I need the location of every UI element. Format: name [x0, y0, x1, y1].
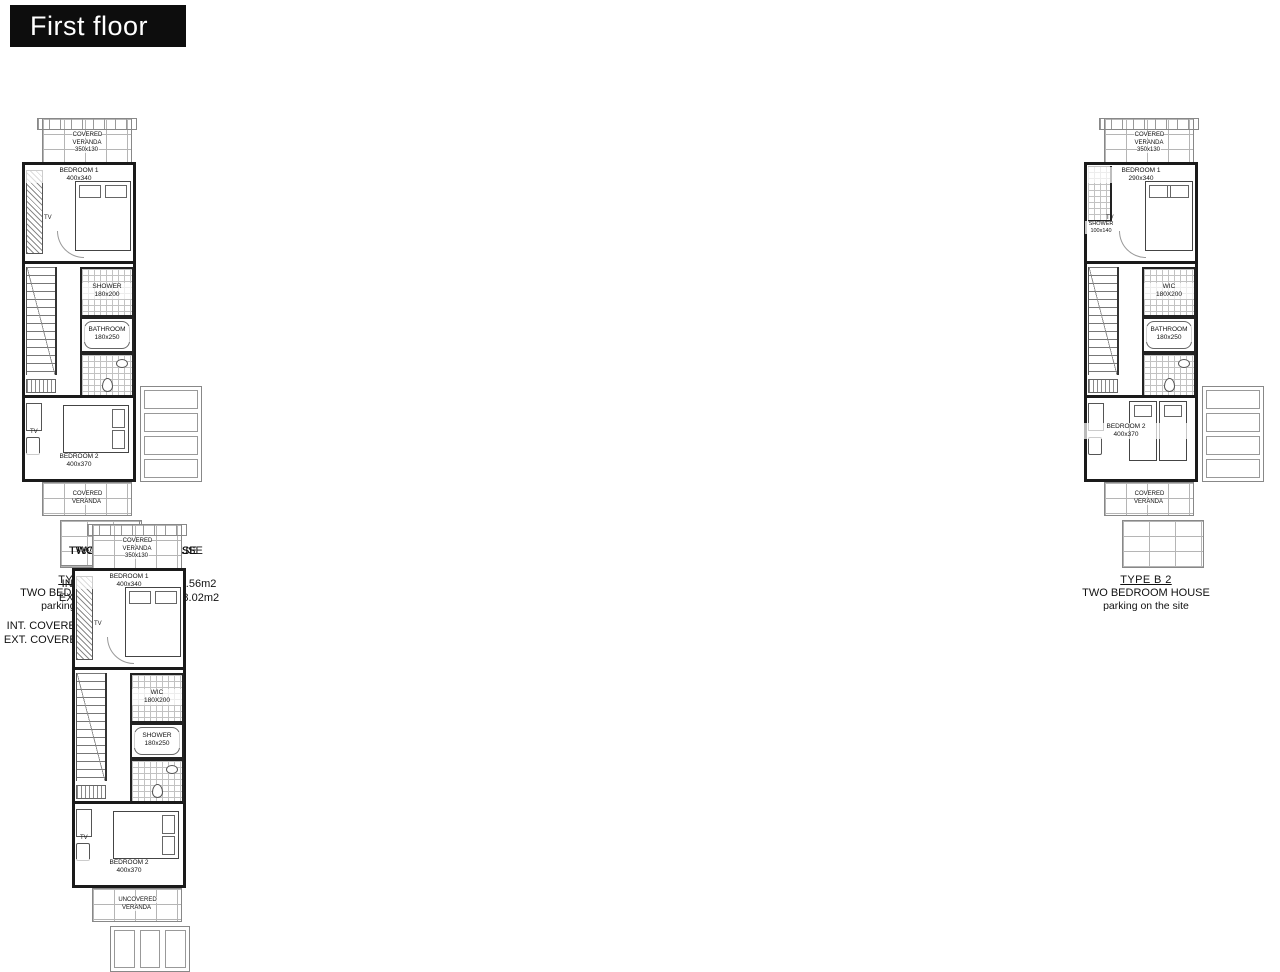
mid-room-1-name: SHOWER [82, 283, 132, 291]
parking-bay [1206, 390, 1260, 409]
bedroom2-label: BEDROOM 2 400x370 [25, 453, 133, 469]
interior-wall [1087, 261, 1195, 264]
toilet-symbol [102, 378, 113, 392]
veranda-top: COVERED VERANDA 350x130 [42, 118, 132, 166]
mid-room-1: WIC 180X200 [130, 673, 184, 723]
mid-room-2-label: SHOWER 180x250 [132, 732, 182, 748]
bedroom2-name: BEDROOM 2 [25, 453, 133, 461]
hall-hatch-left [1088, 379, 1118, 393]
veranda-deck [1099, 118, 1199, 130]
bedroom1-name: BEDROOM 1 [25, 167, 133, 175]
floor-plan: COVERED VERANDA 350x130 SHOWER 100x140 B… [1076, 118, 1272, 648]
veranda-top-text: COVERED VERANDA 350x130 [122, 538, 153, 559]
mid-room-1: SHOWER 180x200 [80, 267, 134, 317]
mid-room-1-dim: 180X200 [1144, 291, 1194, 299]
chair-symbol [1088, 437, 1102, 455]
title-block: First floor [10, 5, 186, 47]
staircase-symbol [1088, 267, 1119, 375]
toilet-symbol [1164, 378, 1175, 392]
veranda-top-text: COVERED VERANDA 350x130 [1134, 132, 1165, 153]
parking-area-side [140, 386, 202, 482]
parking-bay [1206, 413, 1260, 432]
veranda-top-label: COVERED VERANDA 350x130 [1105, 132, 1193, 155]
door-swing-arc [107, 637, 134, 664]
interior-wall [1087, 395, 1195, 398]
bedroom2-label: BEDROOM 2 400x370 [75, 859, 183, 875]
page-title: First floor [10, 11, 148, 42]
mid-room-1-name: WIC [132, 689, 182, 697]
parking-bay [144, 436, 198, 455]
wc-room [80, 353, 134, 397]
mid-room-2-name: SHOWER [132, 732, 182, 740]
parking-bay [1206, 459, 1260, 478]
tv-label-2: TV [80, 835, 88, 841]
veranda-deck [87, 524, 187, 536]
plan-drawing: COVERED VERANDA 350x130 SHOWER 100x140 B… [1076, 118, 1272, 566]
veranda-bottom: COVERED VERANDA [1104, 482, 1194, 516]
toilet-symbol [152, 784, 163, 798]
mid-room-2: SHOWER 180x250 [130, 723, 184, 759]
door-swing-arc [1119, 231, 1146, 258]
sink-symbol [1178, 359, 1190, 368]
parking-bay [165, 930, 186, 968]
bedroom2-dim: 400x370 [1057, 431, 1195, 439]
staircase-symbol [76, 673, 107, 781]
wc-room [1142, 353, 1196, 397]
mid-room-2: BATHROOM 180x250 [1142, 317, 1196, 353]
cabinet-symbol [26, 403, 42, 431]
veranda-bottom-label: COVERED VERANDA [43, 491, 131, 506]
parking-area-front [110, 926, 190, 972]
mid-room-1-dim: 180X200 [132, 697, 182, 705]
interior-wall [75, 801, 183, 804]
mid-room-2-label: BATHROOM 180x250 [82, 326, 132, 342]
veranda-bottom-text: UNCOVERED VERANDA [117, 897, 156, 911]
mid-room-1-dim: 180x200 [82, 291, 132, 299]
mid-room-1-label: SHOWER 180x200 [82, 283, 132, 299]
veranda-top: COVERED VERANDA 350x130 [92, 524, 182, 572]
bedroom1-name: BEDROOM 1 [75, 573, 183, 581]
mid-room-2-dim: 180x250 [132, 740, 182, 748]
veranda-top-label: COVERED VERANDA 350x130 [43, 132, 131, 155]
parking-area-side [1202, 386, 1264, 482]
interior-wall [25, 261, 133, 264]
building-outline: BEDROOM 1 400x340 TV WIC 180X200 [72, 568, 186, 888]
shower-small-label: SHOWER 100x140 [1085, 221, 1117, 234]
mid-room-1-label: WIC 180X200 [1144, 283, 1194, 299]
veranda-top-text: COVERED VERANDA 350x130 [72, 132, 103, 153]
veranda-bottom-text: COVERED VERANDA [1134, 491, 1165, 505]
veranda-bottom-text: COVERED VERANDA [72, 491, 103, 505]
double-bed-symbol [63, 405, 129, 453]
veranda-bottom: COVERED VERANDA [42, 482, 132, 516]
door-swing-arc [57, 231, 84, 258]
mid-room-2-name: BATHROOM [82, 326, 132, 334]
parking-bay [1206, 436, 1260, 455]
veranda-bottom: UNCOVERED VERANDA [92, 888, 182, 922]
building-outline: BEDROOM 1 400x340 TV SHOWER 180x200 [22, 162, 136, 482]
double-bed-symbol [1145, 181, 1193, 251]
wc-room [130, 759, 184, 803]
plan-description: TWO BEDROOM HOUSE [1082, 587, 1210, 599]
bedroom2-label: BEDROOM 2 400x370 [1057, 423, 1195, 439]
parking-bay [144, 413, 198, 432]
mid-room-1-label: WIC 180X200 [132, 689, 182, 705]
mid-room-2-label: BATHROOM 180x250 [1144, 326, 1194, 342]
double-bed-symbol [113, 811, 179, 859]
veranda-bottom-label: COVERED VERANDA [1105, 491, 1193, 506]
sink-symbol [166, 765, 178, 774]
cabinet-symbol [76, 809, 92, 837]
bedroom2-name: BEDROOM 2 [75, 859, 183, 867]
bedroom1-name: BEDROOM 1 [1087, 167, 1195, 175]
bedroom2-dim: 400x370 [25, 461, 133, 469]
interior-wall [25, 395, 133, 398]
staircase-symbol [26, 267, 57, 375]
hall-hatch-left [76, 785, 106, 799]
plan-parking-note: parking on the site [1103, 600, 1189, 612]
tv-label-1: TV [44, 215, 52, 221]
mid-room-2: BATHROOM 180x250 [80, 317, 134, 353]
sink-symbol [116, 359, 128, 368]
hall-hatch-left [26, 379, 56, 393]
parking-bay [144, 390, 198, 409]
parking-bay [114, 930, 135, 968]
plans-row: COVERED VERANDA 350x130 BEDROOM 1 400x34… [14, 118, 1272, 648]
plan-caption: TYPE B 2 TWO BEDROOM HOUSE parking on th… [1076, 574, 1216, 619]
bedroom2-name: BEDROOM 2 [1057, 423, 1195, 431]
parking-bay [144, 459, 198, 478]
plan-drawing: COVERED VERANDA 350x130 BEDROOM 1 400x34… [14, 118, 210, 566]
plan-type: TYPE B 2 [1120, 574, 1172, 586]
tv-label-2: TV [30, 429, 38, 435]
mid-room-2-dim: 180x250 [82, 334, 132, 342]
mid-room-1-name: WIC [1144, 283, 1194, 291]
floor-plan: COVERED VERANDA 350x130 BEDROOM 1 400x34… [60, 520, 140, 566]
tv-label-1: TV [1106, 215, 1114, 221]
bedroom2-dim: 400x370 [75, 867, 183, 875]
parking-bay [140, 930, 161, 968]
mid-room-1: WIC 180X200 [1142, 267, 1196, 317]
tv-label-1: TV [94, 621, 102, 627]
veranda-top-label: COVERED VERANDA 350x130 [93, 538, 181, 561]
veranda-deck [37, 118, 137, 130]
patio-grid [1122, 520, 1204, 568]
building-outline: SHOWER 100x140 BEDROOM 1 290x340 TV WIC … [1084, 162, 1198, 482]
mid-room-2-name: BATHROOM [1144, 326, 1194, 334]
mid-room-2-dim: 180x250 [1144, 334, 1194, 342]
veranda-top: COVERED VERANDA 350x130 [1104, 118, 1194, 166]
interior-wall [75, 667, 183, 670]
veranda-bottom-label: UNCOVERED VERANDA [93, 897, 181, 912]
